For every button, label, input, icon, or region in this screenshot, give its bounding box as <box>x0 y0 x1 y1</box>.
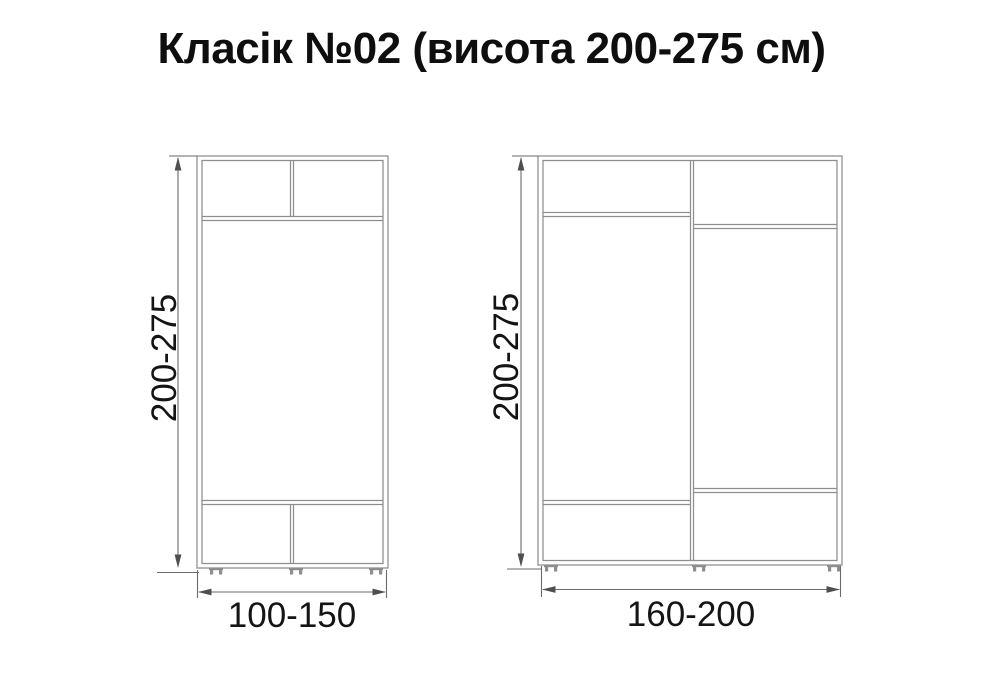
right-wardrobe-body <box>538 156 842 565</box>
diagram-page: Класік №02 (висота 200-275 см) <box>0 0 983 700</box>
left-wardrobe-feet <box>209 568 383 575</box>
right-wardrobe-drawing: 200-275 160-200 <box>487 156 842 634</box>
right-width-label: 160-200 <box>627 595 755 634</box>
left-width-dimension: 100-150 <box>198 570 387 635</box>
right-height-label: 200-275 <box>487 293 526 421</box>
right-height-dimension: 200-275 <box>487 156 541 569</box>
left-wardrobe-drawing: 200-275 100-150 <box>145 156 388 635</box>
left-height-dimension: 200-275 <box>145 156 199 573</box>
left-height-label: 200-275 <box>145 294 184 422</box>
left-wardrobe-body <box>197 156 388 568</box>
right-wardrobe-feet <box>544 565 841 572</box>
right-width-dimension: 160-200 <box>542 566 841 634</box>
wardrobe-diagram-svg: 200-275 100-150 <box>0 0 983 700</box>
left-width-label: 100-150 <box>228 596 356 635</box>
